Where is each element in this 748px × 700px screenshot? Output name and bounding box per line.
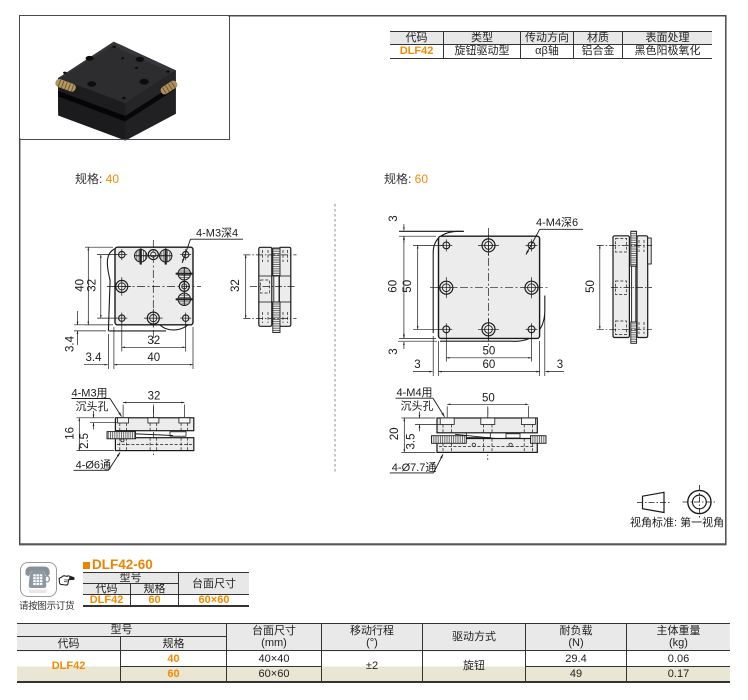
svg-text:40: 40 bbox=[75, 279, 87, 292]
svg-text:4-Ø7.7通: 4-Ø7.7通 bbox=[392, 461, 437, 474]
svg-text:3: 3 bbox=[557, 359, 563, 371]
svg-text:40: 40 bbox=[147, 352, 160, 364]
svg-text:50: 50 bbox=[585, 280, 597, 293]
svg-text:3.4: 3.4 bbox=[86, 352, 103, 364]
svg-text:3.5: 3.5 bbox=[406, 434, 418, 450]
svg-text:4-Ø6通: 4-Ø6通 bbox=[76, 458, 111, 471]
svg-text:20: 20 bbox=[389, 427, 401, 440]
svg-text:4-M4用: 4-M4用 bbox=[397, 387, 433, 399]
svg-text:3: 3 bbox=[414, 359, 420, 371]
svg-text:3: 3 bbox=[388, 215, 400, 221]
svg-text:50: 50 bbox=[482, 392, 495, 404]
svg-text:16: 16 bbox=[65, 427, 77, 440]
svg-text:32: 32 bbox=[148, 391, 161, 403]
svg-text:60: 60 bbox=[388, 280, 400, 293]
svg-text:32: 32 bbox=[87, 279, 99, 292]
svg-text:50: 50 bbox=[483, 345, 496, 357]
svg-text:50: 50 bbox=[402, 280, 414, 293]
svg-text:3: 3 bbox=[388, 348, 400, 354]
svg-text:沉头孔: 沉头孔 bbox=[76, 400, 109, 413]
svg-text:60: 60 bbox=[483, 359, 496, 371]
svg-text:4-M3深4: 4-M3深4 bbox=[196, 227, 238, 240]
svg-text:沉头孔: 沉头孔 bbox=[401, 400, 434, 413]
svg-text:4-M3用: 4-M3用 bbox=[72, 387, 108, 399]
svg-text:4-M4深6: 4-M4深6 bbox=[536, 216, 578, 229]
svg-text:2.5: 2.5 bbox=[79, 433, 91, 449]
svg-text:32: 32 bbox=[147, 335, 160, 347]
svg-text:3.4: 3.4 bbox=[65, 335, 77, 352]
svg-text:32: 32 bbox=[230, 279, 242, 292]
